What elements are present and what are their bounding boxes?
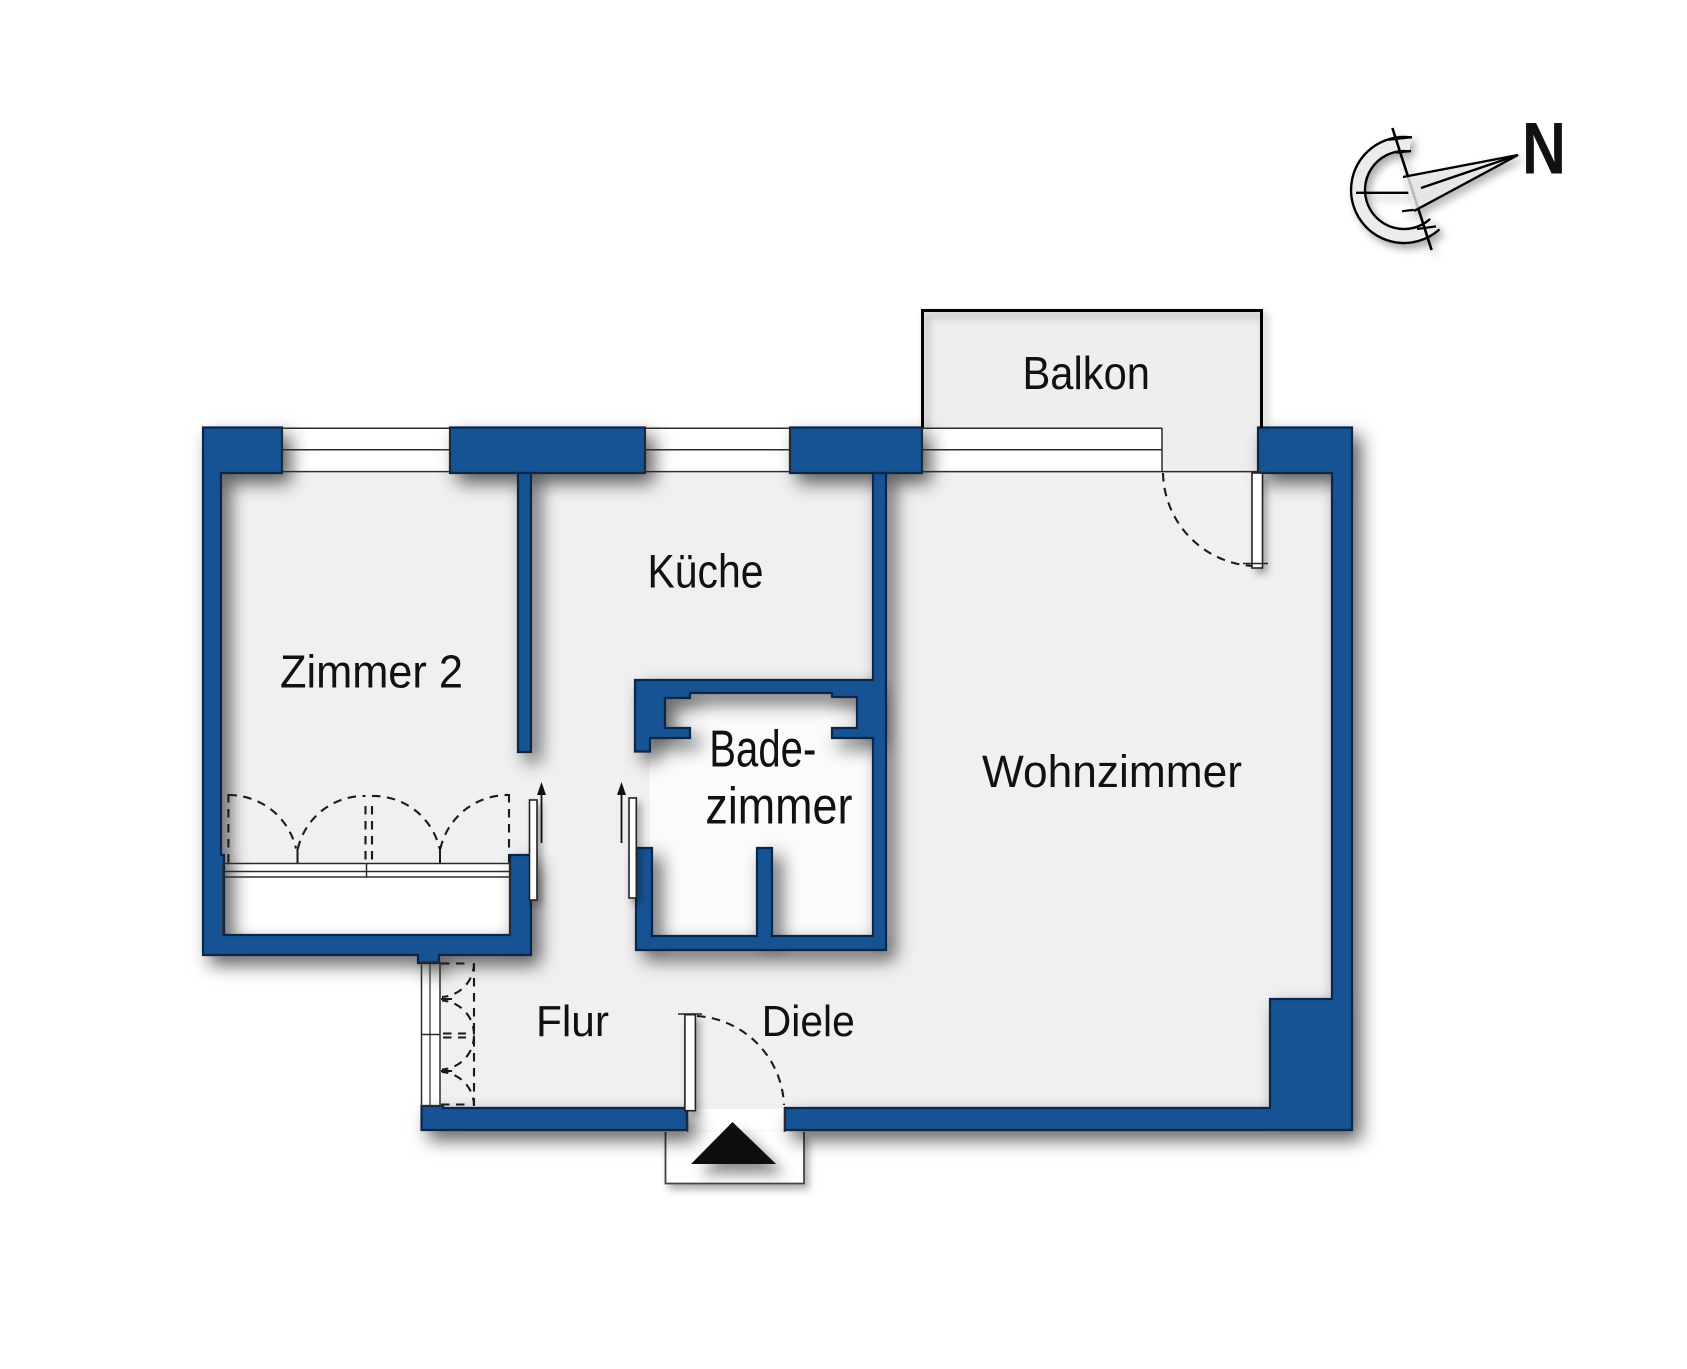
svg-text:zimmer: zimmer xyxy=(705,777,852,835)
svg-text:Zimmer 2: Zimmer 2 xyxy=(280,646,463,698)
svg-text:N: N xyxy=(1522,109,1566,190)
svg-text:Flur: Flur xyxy=(536,997,609,1046)
svg-text:Wohnzimmer: Wohnzimmer xyxy=(982,746,1242,797)
svg-text:Bade-: Bade- xyxy=(709,721,816,779)
svg-text:Küche: Küche xyxy=(648,545,764,598)
svg-text:Balkon: Balkon xyxy=(1023,347,1151,399)
svg-text:Diele: Diele xyxy=(762,997,855,1046)
